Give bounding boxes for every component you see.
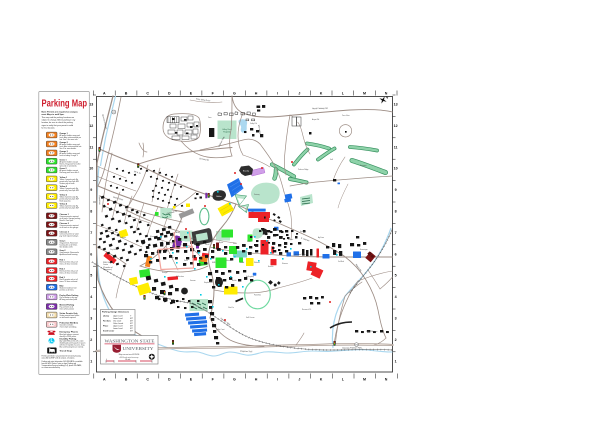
svg-text:Playfields: Playfields [223,131,231,133]
svg-text:J: J [298,378,300,382]
svg-text:11: 11 [394,145,398,149]
svg-text:Kruegel: Kruegel [162,272,168,274]
svg-text:B: B [125,378,128,382]
svg-text:Visitors pay at kiosk.: Visitors pay at kiosk. [60,182,76,185]
svg-text:5: 5 [395,274,397,278]
svg-text:Bryan: Bryan [219,242,223,244]
svg-text:Parking Garage Clearances: Parking Garage Clearances [102,311,130,314]
svg-text:permit only 7am-5pm M-F.: permit only 7am-5pm M-F. [60,207,80,210]
svg-text:This map and the parking locat: This map and the parking locations are [42,116,75,119]
svg-text:Terre View: Terre View [342,115,350,117]
svg-text:pay stub required always.: pay stub required always. [60,234,80,237]
svg-text:1/4 mile: 1/4 mile [125,359,130,361]
svg-text:See 5 for more details.: See 5 for more details. [60,147,78,150]
svg-text:J: J [298,92,300,96]
svg-text:1: 1 [395,359,397,363]
svg-text:1: 1 [90,359,92,363]
svg-text:10: 10 [89,167,93,171]
svg-text:Bohler: Bohler [216,196,222,198]
svg-text:Fine Arts: Fine Arts [103,320,111,323]
svg-text:lots. See 5 for more info.: lots. See 5 for more info. [60,138,79,141]
svg-text:Smith Center: Smith Center [103,330,114,333]
svg-text:13: 13 [394,103,398,107]
svg-text:Research Pk: Research Pk [302,309,311,311]
svg-text:UNIVERSITY: UNIVERSITY [123,346,155,351]
svg-text:permits at all times.: permits at all times. [60,288,75,291]
svg-text:I: I [277,92,278,96]
svg-text:N: N [385,378,388,382]
svg-text:G: G [233,378,236,382]
svg-text:Golf Course: Golf Course [246,317,255,319]
svg-text:Fairways: Fairways [360,165,367,167]
svg-text:Johnson: Johnson [226,260,232,262]
svg-text:Commerce): Commerce) [103,268,112,271]
svg-text:Red may park here after 5.: Red may park here after 5. [60,171,81,174]
svg-text:Beasley: Beasley [243,171,249,173]
svg-text:Sloan: Sloan [170,257,174,259]
svg-text:Heald: Heald [240,262,244,264]
svg-text:8: 8 [395,210,397,214]
svg-text:11: 11 [89,145,93,149]
svg-text:C: C [146,378,149,382]
svg-text:Grimes Way: Grimes Way [295,254,306,256]
svg-text:Lower Level: Lower Level [113,328,123,330]
svg-text:Apartment land housing.: Apartment land housing. [60,253,79,256]
svg-text:Chief Jo: Chief Jo [228,307,234,309]
svg-text:6'8": 6'8" [130,331,133,333]
svg-text:4: 4 [90,295,92,299]
svg-text:Moscow Pullman Hwy: Moscow Pullman Hwy [342,347,362,349]
svg-text:EME: EME [212,262,215,264]
svg-text:most Mays to until 5pm.: most Mays to until 5pm. [42,113,65,116]
svg-text:7: 7 [90,231,92,235]
svg-text:Parking Map: Parking Map [42,99,88,110]
svg-text:8: 8 [90,210,92,214]
svg-text:at all times in this garage.: at all times in this garage. [60,226,80,229]
svg-text:A: A [103,92,106,96]
svg-text:Fairway: Fairway [254,194,260,196]
svg-text:subject to change. Before park: subject to change. Before parking in any [42,119,76,122]
svg-text:Kiosk pay also.: Kiosk pay also. [60,201,72,203]
svg-text:Terrell: Terrell [205,244,210,246]
svg-text:Tenn: Tenn [208,117,212,119]
svg-text:Map current as of 8/15/06: Map current as of 8/15/06 [119,353,139,356]
svg-text:7am to 5pm weekdays.: 7am to 5pm weekdays. [60,326,78,329]
svg-text:Murrow: Murrow [150,236,156,238]
svg-text:12: 12 [394,124,398,128]
svg-text:G: G [233,92,236,96]
svg-text:D: D [168,378,171,382]
svg-text:270: 270 [355,345,358,347]
svg-text:Fulmer: Fulmer [156,252,161,254]
svg-text:I: I [277,378,278,382]
svg-text:location, be sure to check the: location, be sure to check the parking [42,121,73,124]
svg-text:times. 24 hour reserved.: times. 24 hour reserved. [60,272,79,275]
svg-text:Valley Rd: Valley Rd [250,123,257,125]
svg-text:C: C [146,92,149,96]
svg-text:Library: Library [103,316,109,318]
svg-text:CUE: CUE [163,228,166,230]
svg-text:Field Site: Field Site [254,294,261,297]
svg-text:times. 24 hour reserved.: times. 24 hour reserved. [60,262,79,265]
svg-text:Transit Stops: Transit Stops [60,350,74,353]
svg-text:times when posted.: times when posted. [60,308,75,311]
svg-text:H: H [255,378,258,382]
svg-text:B: B [125,92,128,96]
svg-text:See details at left.: See details at left. [60,245,74,248]
svg-text:5pm and on weekends.: 5pm and on weekends. [60,165,78,167]
svg-text:here including Orange 3.: here including Orange 3. [60,154,79,157]
svg-text:McEachern: McEachern [176,276,184,278]
svg-text:2: 2 [395,338,397,342]
svg-text:A: A [103,378,106,382]
svg-text:Center: Center [103,263,109,266]
svg-text:6: 6 [90,252,92,256]
svg-text:WASHINGTON STATE: WASHINGTON STATE [105,339,155,344]
svg-text:Disability Parking: Disability Parking [60,337,78,340]
svg-text:times. 24 hour reserved.: times. 24 hour reserved. [60,280,79,283]
svg-text:K: K [320,92,323,96]
svg-text:Dana: Dana [184,260,188,262]
svg-text:Mon-Fri 7am-5pm.: Mon-Fri 7am-5pm. [60,219,74,222]
svg-text:3: 3 [395,317,397,321]
svg-text:North Fairway Rd: North Fairway Rd [312,107,328,110]
svg-text:9: 9 [395,188,397,192]
svg-text:permit only 7am-5pm M-F.: permit only 7am-5pm M-F. [60,189,80,192]
svg-text:3: 3 [90,317,92,321]
svg-text:13: 13 [89,103,93,107]
svg-text:M: M [363,378,366,382]
svg-text:directly to WSU police.: directly to WSU police. [60,335,78,338]
svg-text:7: 7 [395,231,397,235]
svg-text:Todd: Todd [262,234,266,236]
svg-text:Bohler: Bohler [232,280,237,282]
svg-text:D: D [168,92,171,96]
svg-text:for that location.: for that location. [42,126,56,129]
svg-text:Hollingbery: Hollingbery [246,276,254,278]
svg-text:10: 10 [394,167,398,171]
svg-text:Waller: Waller [247,241,252,243]
svg-text:Gannon: Gannon [190,280,196,282]
svg-text:All may park when paid.: All may park when paid. [60,298,78,301]
svg-text:Wilson: Wilson [276,230,281,232]
svg-text:Grand Ave: Grand Ave [98,195,101,205]
svg-text:Pullman: Pullman [120,237,126,239]
svg-text:signs to verify that your perm: signs to verify that your permit is vali… [42,124,74,127]
svg-text:4: 4 [395,295,397,299]
svg-text:Holland: Holland [191,238,197,240]
svg-text:Palouse Ridge: Palouse Ridge [298,169,308,171]
svg-text:K: K [320,378,323,382]
svg-text:Phase: Phase [103,326,108,328]
svg-text:2: 2 [90,338,92,342]
svg-text:M: M [363,92,366,96]
svg-text:5: 5 [90,274,92,278]
svg-text:9: 9 [90,188,92,192]
svg-text:H: H [255,92,258,96]
svg-text:Ensminger: Ensminger [360,249,368,251]
svg-text:Spillman: Spillman [300,231,306,233]
svg-text:or info booth required.: or info booth required. [60,316,77,319]
svg-text:12: 12 [89,124,93,128]
svg-text:6: 6 [395,252,397,256]
